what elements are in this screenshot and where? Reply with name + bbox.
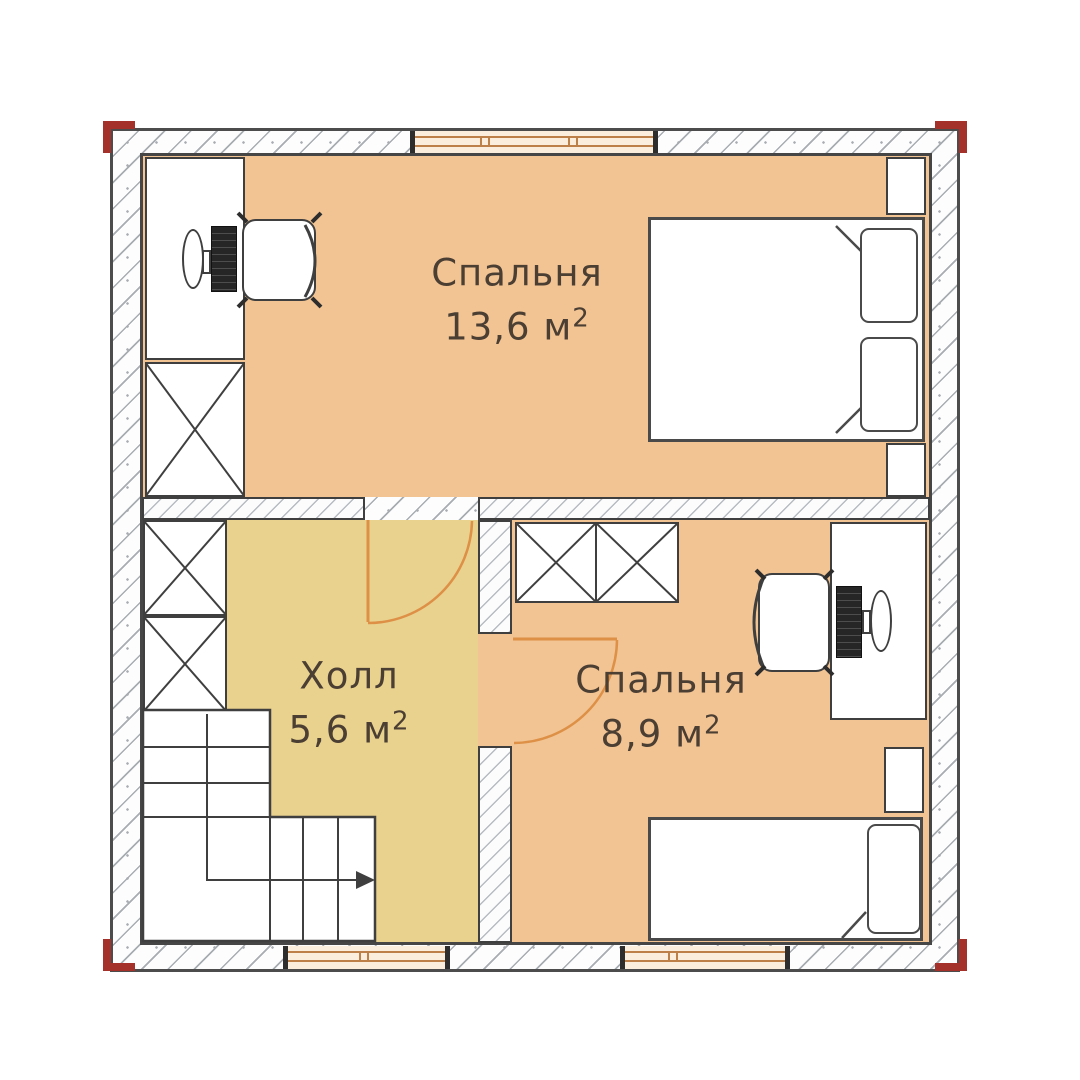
chair-back-icon (754, 577, 764, 668)
room-area: 8,9 м2 (575, 712, 747, 752)
room-label-bedroom-1: Спальня 13,6 м2 (431, 254, 603, 345)
room-name: Холл (288, 657, 409, 694)
bed-fold-line (836, 226, 861, 433)
room-label-bedroom-2: Спальня 8,9 м2 (575, 661, 747, 752)
room-area: 5,6 м2 (288, 708, 409, 748)
room-name: Спальня (575, 661, 747, 698)
floor-plan: Спальня 13,6 м2 Холл 5,6 м2 Спальня 8,9 … (0, 0, 1080, 1080)
room-name: Спальня (431, 254, 603, 291)
chair-back-icon (305, 225, 315, 297)
bed-fold-line (842, 912, 866, 938)
door-1-swing-arc (368, 521, 472, 623)
room-area: 13,6 м2 (431, 305, 603, 345)
room-label-hall: Холл 5,6 м2 (288, 657, 409, 748)
plan-overlay (0, 0, 1080, 1080)
